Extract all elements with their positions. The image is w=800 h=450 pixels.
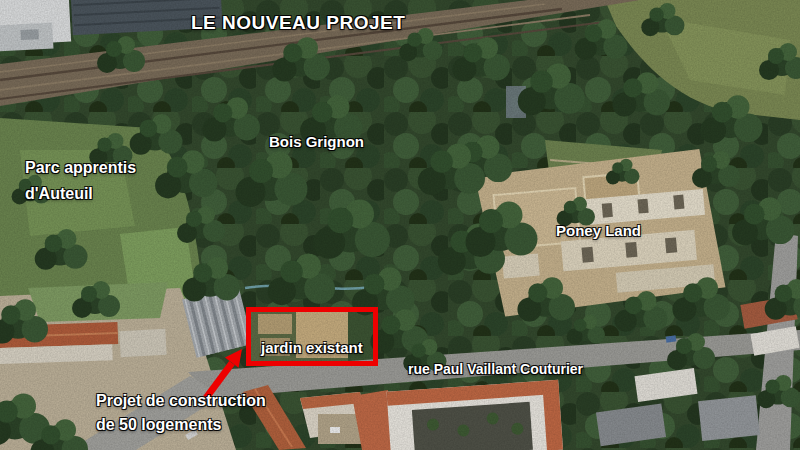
map-title: LE NOUVEAU PROJET bbox=[191, 11, 405, 35]
label-parc-apprentis-auteuil: Parc apprentis d'Auteuil bbox=[25, 155, 136, 207]
label-bois-grignon: Bois Grignon bbox=[269, 133, 364, 152]
label-poney-land: Poney Land bbox=[556, 222, 641, 241]
label-projet-construction: Projet de construction de 50 logements bbox=[96, 389, 266, 437]
label-rue-paul-vaillant-couturier: rue Paul Vaillant Couturier bbox=[408, 361, 583, 379]
photo-grain bbox=[0, 0, 800, 450]
label-jardin-existant: jardin existant bbox=[261, 339, 363, 358]
aerial-photo bbox=[0, 0, 800, 450]
annotated-aerial-map: LE NOUVEAU PROJET Parc apprentis d'Auteu… bbox=[0, 0, 800, 450]
